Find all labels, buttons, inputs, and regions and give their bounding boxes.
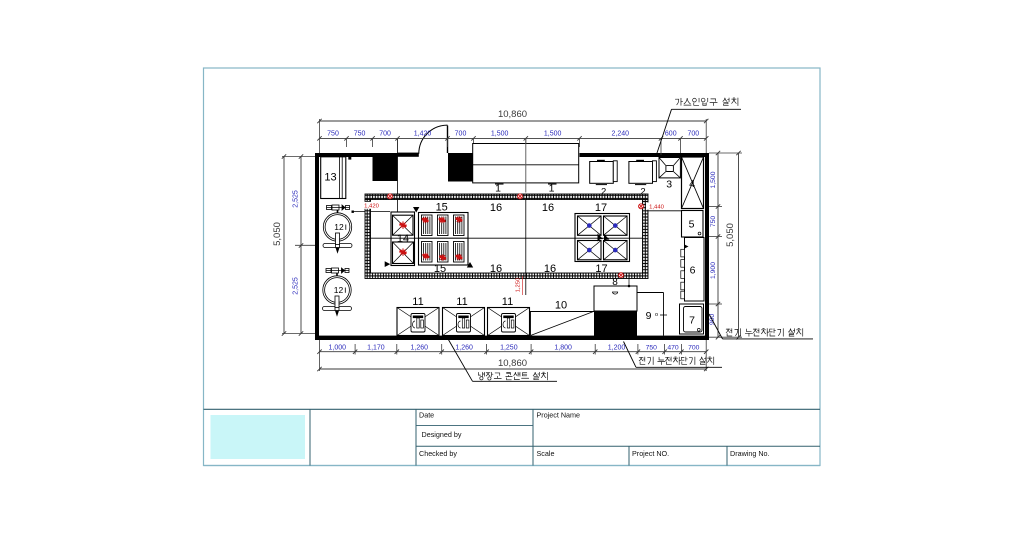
svg-text:1,800: 1,800 [554,345,572,352]
svg-text:Project Name: Project Name [537,410,581,419]
svg-text:750: 750 [354,130,366,137]
svg-text:700: 700 [688,345,700,352]
svg-text:1,250: 1,250 [516,277,522,292]
svg-text:Scale: Scale [537,449,555,458]
svg-text:1,420: 1,420 [414,130,432,137]
svg-text:16: 16 [490,202,502,214]
svg-text:16: 16 [544,263,556,275]
svg-text:1,500: 1,500 [491,130,509,137]
svg-text:11: 11 [412,296,423,308]
svg-text:600: 600 [665,130,677,137]
svg-text:1: 1 [495,183,501,195]
svg-text:10,860: 10,860 [498,358,527,369]
svg-text:Date: Date [419,410,434,419]
svg-text:700: 700 [455,130,467,137]
svg-text:10,860: 10,860 [498,109,527,120]
svg-text:1,900: 1,900 [710,262,717,279]
svg-text:1,250: 1,250 [500,345,518,352]
svg-text:1,500: 1,500 [544,130,562,137]
svg-text:9: 9 [646,310,652,322]
svg-text:17: 17 [595,202,607,214]
svg-text:6: 6 [690,265,696,277]
svg-text:1,440: 1,440 [649,205,664,211]
svg-text:Project NO.: Project NO. [632,449,669,458]
svg-text:750: 750 [710,216,717,228]
svg-text:17: 17 [595,263,607,275]
svg-text:3: 3 [666,178,672,190]
svg-text:15: 15 [434,263,446,275]
svg-text:5: 5 [689,219,695,231]
svg-text:Checked by: Checked by [419,449,457,458]
svg-text:10: 10 [555,300,567,312]
svg-text:700: 700 [688,130,700,137]
svg-text:7: 7 [689,315,695,327]
svg-text:470: 470 [667,345,679,352]
svg-text:12: 12 [334,285,344,295]
svg-text:1,260: 1,260 [410,345,428,352]
svg-text:750: 750 [327,130,339,137]
svg-text:o: o [655,312,658,318]
svg-text:1,500: 1,500 [710,171,717,188]
svg-text:700: 700 [379,130,391,137]
svg-text:2,525: 2,525 [293,190,300,208]
svg-text:5,050: 5,050 [272,222,283,246]
svg-text:12: 12 [334,222,344,232]
svg-text:1: 1 [549,183,555,195]
svg-text:1,000: 1,000 [329,345,347,352]
svg-text:16: 16 [490,263,502,275]
svg-text:Designed by: Designed by [422,430,462,439]
svg-text:13: 13 [324,172,336,184]
svg-text:4: 4 [689,178,695,190]
svg-text:11: 11 [456,296,467,308]
svg-text:Drawing No.: Drawing No. [730,449,770,458]
svg-text:1,200: 1,200 [608,345,626,352]
svg-text:2,240: 2,240 [611,130,629,137]
svg-text:2,525: 2,525 [293,277,300,295]
svg-text:1,260: 1,260 [455,345,473,352]
svg-text:1,170: 1,170 [367,345,385,352]
svg-text:15: 15 [436,201,448,213]
svg-text:750: 750 [646,345,658,352]
svg-text:14: 14 [397,233,409,245]
svg-text:11: 11 [502,296,513,308]
svg-text:16: 16 [542,202,554,214]
svg-text:5,050: 5,050 [725,223,736,247]
svg-text:1,420: 1,420 [364,203,379,209]
